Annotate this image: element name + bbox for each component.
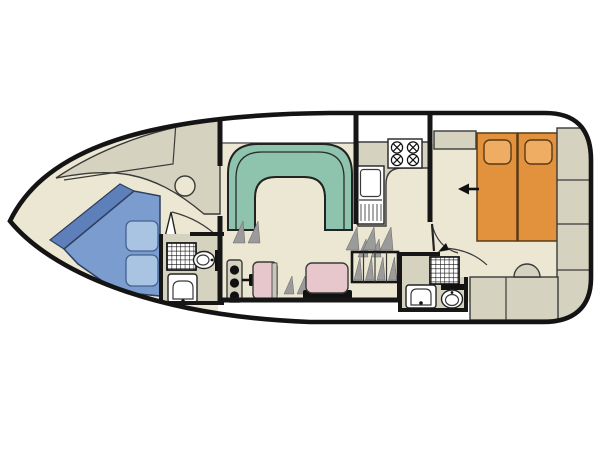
aft-basin bbox=[406, 285, 436, 308]
bow-stool: Bow cabin seat bbox=[175, 176, 195, 196]
helm-seat-single: Single helm seat bbox=[253, 262, 277, 299]
bow-pillow-2 bbox=[126, 255, 158, 286]
boat-floor-plan: Boat hull outline Bow cabin worktop and … bbox=[0, 0, 600, 450]
forward-bathroom: Forward bathroom with shower, toilet and… bbox=[161, 234, 222, 303]
helm-seat-double: Double helm seat bbox=[303, 263, 352, 299]
interior: Bow cabin worktop and lockers V-berth do… bbox=[10, 100, 600, 330]
floor-plan-canvas: Boat hull outline Bow cabin worktop and … bbox=[0, 0, 600, 450]
bow-pillow-1 bbox=[126, 221, 158, 251]
stern-bench: Stern bench seating bbox=[470, 277, 558, 320]
aft-toilet bbox=[441, 284, 464, 308]
hob: Four-burner hob bbox=[388, 139, 422, 168]
forward-basin bbox=[168, 274, 197, 303]
forward-shower bbox=[167, 243, 196, 270]
galley-sink: Galley sink with drainer bbox=[357, 166, 384, 224]
aft-shower bbox=[430, 257, 459, 284]
wardrobe-lockers: Wardrobe and side lockers bbox=[557, 128, 591, 320]
aft-bathroom: Aft bathroom with shower, toilet and was… bbox=[400, 254, 466, 310]
aft-beds: Aft double berth (two mattresses with pi… bbox=[477, 133, 558, 241]
aft-shelf bbox=[434, 131, 476, 149]
